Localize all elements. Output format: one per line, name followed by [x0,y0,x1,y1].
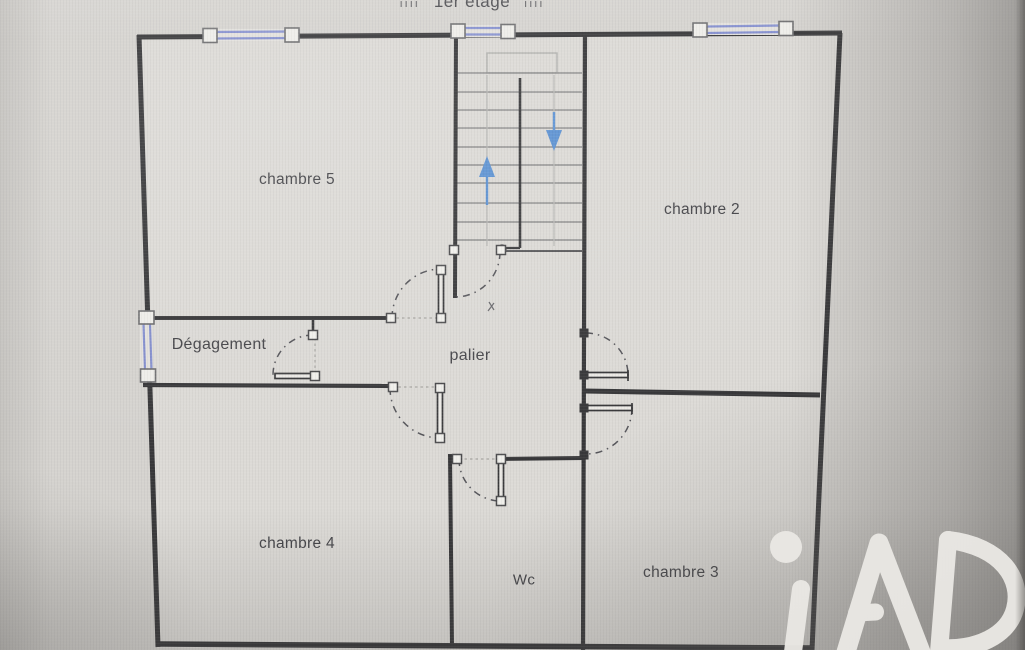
iad-d-stem [939,540,948,650]
iad-a-bar [848,603,885,622]
iad-logo-graphic [0,0,1025,650]
floor-plan-photo: ıııı 1er étage ıııı chambre 5 chambre 2 … [0,0,1025,650]
iad-a-shape [846,543,921,650]
iad-logo: iAD [0,0,1025,650]
iad-i-stem [793,589,801,650]
iad-i-dot [770,531,802,563]
